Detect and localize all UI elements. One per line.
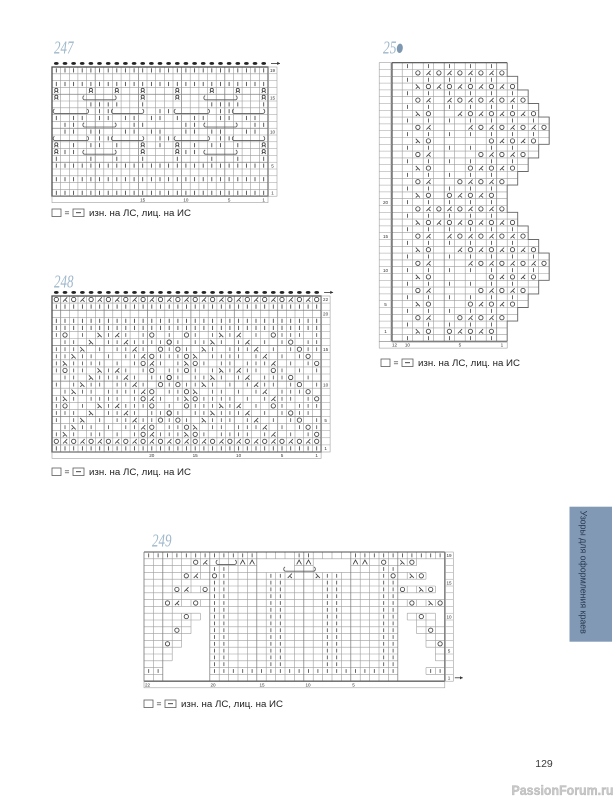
svg-text:129: 129 <box>535 758 553 770</box>
svg-text:20: 20 <box>383 200 389 205</box>
svg-text:249: 249 <box>152 531 172 551</box>
svg-text:15: 15 <box>323 347 329 352</box>
svg-text:19: 19 <box>270 68 276 73</box>
svg-text:изн. на ЛС, лиц. на ИС: изн. на ЛС, лиц. на ИС <box>89 208 192 218</box>
svg-text:10: 10 <box>183 197 189 202</box>
svg-text:5: 5 <box>352 683 355 688</box>
svg-text:1: 1 <box>262 197 265 202</box>
svg-text:Узоры для оформления краев: Узоры для оформления краев <box>579 511 589 635</box>
svg-text:5: 5 <box>448 648 451 653</box>
svg-text:=: = <box>157 699 162 709</box>
svg-text:5: 5 <box>228 197 231 202</box>
svg-text:10: 10 <box>446 614 452 619</box>
svg-text:10: 10 <box>383 268 389 273</box>
svg-text:1: 1 <box>324 446 327 451</box>
svg-text:PassionForum.ru: PassionForum.ru <box>512 783 614 798</box>
svg-text:изн. на ЛС, лиц. на ИС: изн. на ЛС, лиц. на ИС <box>89 467 192 477</box>
svg-text:22: 22 <box>323 297 329 302</box>
svg-text:5: 5 <box>271 163 274 168</box>
svg-text:20: 20 <box>323 311 329 316</box>
svg-text:=: = <box>65 208 70 218</box>
svg-text:15: 15 <box>446 580 452 585</box>
svg-text:5: 5 <box>281 453 284 458</box>
svg-text:15: 15 <box>383 234 389 239</box>
svg-text:1: 1 <box>271 191 274 196</box>
svg-text:25: 25 <box>383 38 397 58</box>
svg-text:10: 10 <box>305 683 311 688</box>
svg-text:10: 10 <box>323 382 329 387</box>
svg-text:20: 20 <box>149 453 155 458</box>
svg-text:19: 19 <box>446 553 452 558</box>
svg-text:248: 248 <box>54 272 74 292</box>
svg-text:=: = <box>65 467 70 477</box>
svg-text:1: 1 <box>448 676 451 681</box>
svg-text:12: 12 <box>392 343 398 348</box>
svg-text:15: 15 <box>270 95 276 100</box>
svg-text:22: 22 <box>145 683 151 688</box>
svg-text:1: 1 <box>315 453 318 458</box>
svg-text:10: 10 <box>236 453 242 458</box>
svg-text:15: 15 <box>259 683 265 688</box>
svg-text:247: 247 <box>54 38 74 58</box>
svg-text:1: 1 <box>384 329 387 334</box>
svg-text:5: 5 <box>324 418 327 423</box>
svg-text:1: 1 <box>501 343 504 348</box>
svg-text:5: 5 <box>384 302 387 307</box>
svg-text:=: = <box>394 358 399 368</box>
svg-text:10: 10 <box>405 343 411 348</box>
svg-text:изн. на ЛС, лиц. на ИС: изн. на ЛС, лиц. на ИС <box>181 699 284 709</box>
svg-text:20: 20 <box>210 683 216 688</box>
svg-text:5: 5 <box>459 343 462 348</box>
svg-text:15: 15 <box>140 197 146 202</box>
svg-text:изн. на ЛС, лиц. на ИС: изн. на ЛС, лиц. на ИС <box>418 358 521 368</box>
svg-text:10: 10 <box>270 129 276 134</box>
svg-text:15: 15 <box>193 453 199 458</box>
